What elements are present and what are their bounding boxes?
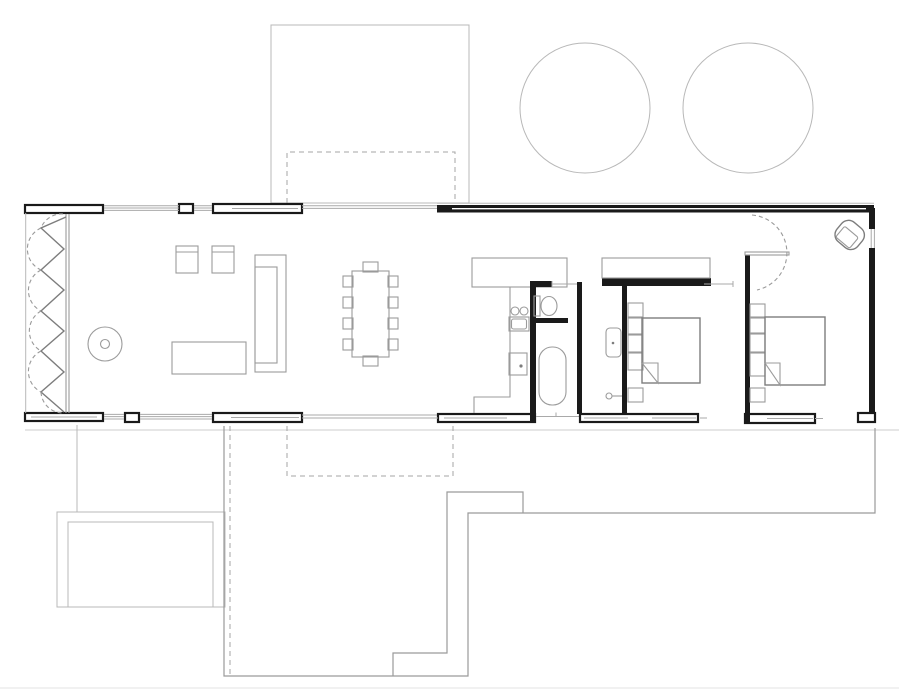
kitchen-counter-top	[472, 258, 567, 287]
bathtub	[539, 347, 566, 405]
west-swing-arc-4	[28, 351, 41, 392]
armchair-2	[212, 246, 234, 273]
bed2-armchair-seat	[836, 226, 859, 248]
bed2-nightstand-bottom	[750, 388, 765, 402]
site-deck-dashed	[287, 152, 455, 203]
south-wall-post	[125, 413, 139, 422]
east-wall-top	[869, 208, 875, 229]
floor-plan-canvas	[0, 0, 899, 694]
north-wall-post	[179, 204, 193, 213]
wc-wall-top	[530, 281, 552, 287]
kitchen-sink-drain	[519, 364, 522, 367]
bed2-wall-cap	[745, 252, 789, 255]
cooktop-burner-1	[511, 307, 519, 315]
dining-table	[352, 271, 389, 357]
bath-wall-vertical	[530, 281, 536, 421]
bed1-blanket-fold	[642, 363, 658, 383]
toilet-bowl	[541, 297, 557, 316]
bath-wall-east	[577, 282, 582, 414]
west-swing-arc-2	[28, 270, 41, 311]
wood-stove	[88, 327, 122, 361]
west-swing-arc-1	[27, 228, 41, 270]
kitchen-counter-edge	[474, 287, 510, 413]
site-walkway-steps	[393, 492, 523, 676]
bed1-nightstand-top	[628, 303, 643, 317]
bed1-closet	[602, 258, 710, 278]
oven-door	[512, 319, 527, 329]
cooktop-burner-2	[520, 307, 528, 315]
site-patio-dashed	[287, 426, 453, 476]
east-wall-bottom	[869, 248, 875, 414]
site-pool-outer	[57, 512, 225, 607]
floor-plan-drawing	[0, 0, 899, 694]
site-tree-2	[683, 43, 813, 173]
site-tree-1	[520, 43, 650, 173]
bed1-pillow-3	[628, 353, 643, 370]
bed1-pillow-1	[628, 318, 643, 334]
bed2-blanket-fold	[765, 363, 780, 385]
site-pool-inner	[68, 522, 213, 607]
bed2-nightstand-top	[750, 304, 765, 317]
site-terrace-outline	[224, 426, 875, 676]
sofa-seat	[255, 267, 277, 363]
south-wall-corner	[858, 413, 875, 422]
bed1-wall-vertical	[622, 286, 627, 414]
site-deck-outline	[271, 25, 469, 203]
corridor-basin-drain	[612, 342, 615, 345]
west-swing-arc-3	[29, 311, 41, 351]
wood-stove-flue	[101, 340, 110, 349]
bed1-wall-top	[602, 278, 711, 286]
coffee-table	[172, 342, 246, 374]
bed2-pillow-1	[750, 318, 765, 333]
armchair-1	[176, 246, 198, 273]
bed1-nightstand-bottom	[628, 388, 643, 402]
bed1-pillow-2	[628, 335, 643, 352]
bed2-pillow-3	[750, 353, 765, 376]
bed2-wall-vertical	[745, 255, 750, 423]
door-handle-circle	[606, 393, 612, 399]
west-accordion-leaves	[41, 217, 66, 412]
kitchen-sink	[509, 353, 527, 375]
north-wall-west	[25, 205, 103, 213]
sofa-outline	[255, 255, 286, 372]
bed2-pillow-2	[750, 334, 765, 352]
wc-wall-mid	[533, 318, 568, 323]
bed2-mattress	[765, 317, 825, 385]
